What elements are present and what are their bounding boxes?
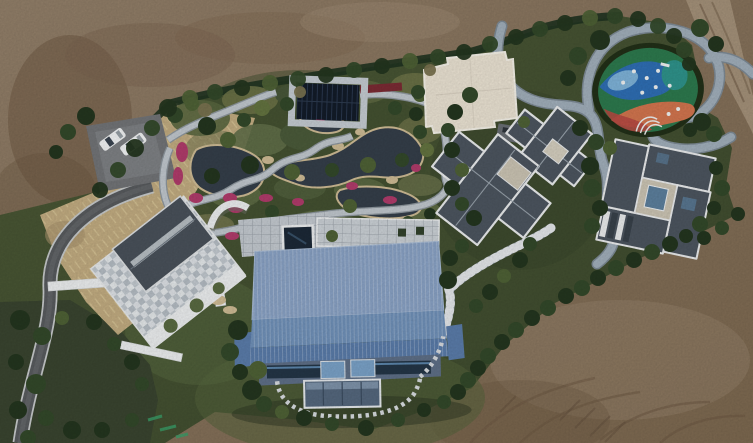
aerial-photo [0,0,753,443]
photo-grain [0,0,753,443]
aerial-photo-svg [0,0,753,443]
